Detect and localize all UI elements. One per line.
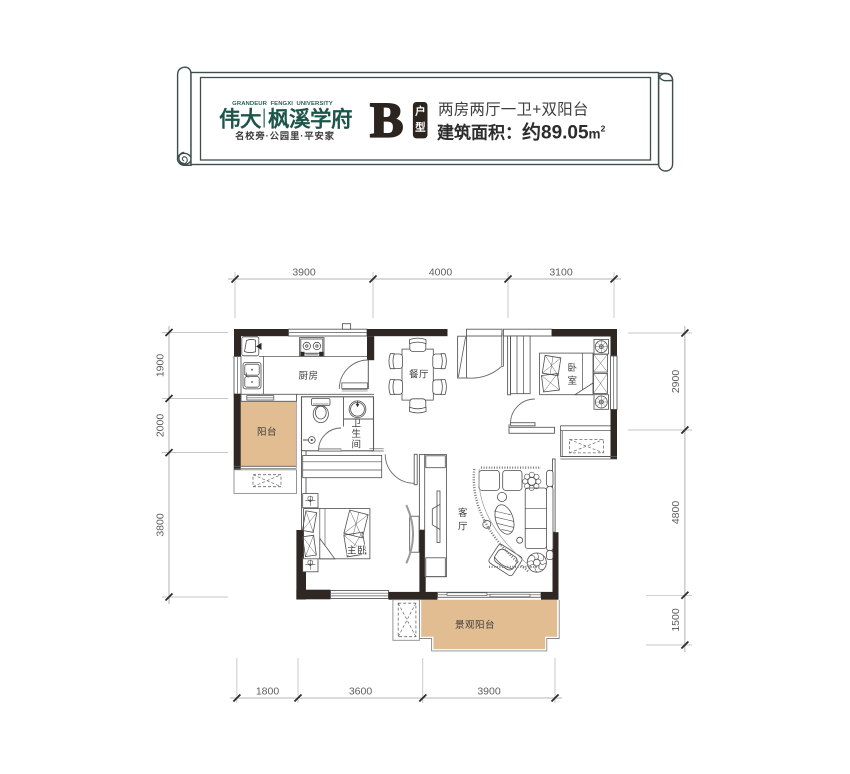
svg-text:名校旁·公园里·平安家: 名校旁·公园里·平安家 [235, 130, 335, 141]
svg-text:间: 间 [352, 439, 362, 451]
svg-text:客: 客 [458, 507, 468, 519]
svg-text:伟大: 伟大 [219, 108, 262, 132]
svg-text:建筑面积：约89.05m2: 建筑面积：约89.05m2 [437, 121, 606, 144]
svg-text:生: 生 [352, 428, 362, 440]
svg-text:2900: 2900 [670, 370, 682, 394]
svg-text:4800: 4800 [670, 501, 682, 525]
svg-text:室: 室 [568, 375, 578, 387]
svg-text:阳台: 阳台 [257, 426, 277, 438]
svg-text:景观阳台: 景观阳台 [455, 619, 495, 631]
svg-text:3600: 3600 [349, 686, 373, 698]
svg-text:2000: 2000 [155, 414, 167, 438]
svg-text:枫溪学府: 枫溪学府 [268, 107, 352, 132]
svg-text:卫: 卫 [352, 419, 362, 430]
svg-text:GRANDEUR FENGXI UNIVERSITY: GRANDEUR FENGXI UNIVERSITY [232, 101, 333, 107]
svg-text:3100: 3100 [549, 267, 573, 279]
svg-text:1800: 1800 [256, 686, 280, 698]
svg-text:户: 户 [414, 105, 426, 118]
svg-text:主卧: 主卧 [347, 545, 367, 557]
svg-text:型: 型 [415, 121, 426, 134]
svg-text:B: B [370, 92, 403, 148]
svg-text:3900: 3900 [292, 267, 316, 279]
svg-text:4000: 4000 [429, 267, 453, 279]
svg-text:3800: 3800 [155, 513, 167, 537]
svg-text:厨房: 厨房 [299, 370, 319, 382]
svg-text:卧: 卧 [568, 362, 578, 374]
svg-text:餐厅: 餐厅 [409, 369, 429, 381]
svg-text:1900: 1900 [155, 354, 167, 378]
svg-text:两房两厅一卫+双阳台: 两房两厅一卫+双阳台 [438, 101, 589, 119]
svg-text:3900: 3900 [477, 686, 501, 698]
svg-text:厅: 厅 [458, 522, 468, 533]
svg-text:1500: 1500 [670, 608, 682, 632]
